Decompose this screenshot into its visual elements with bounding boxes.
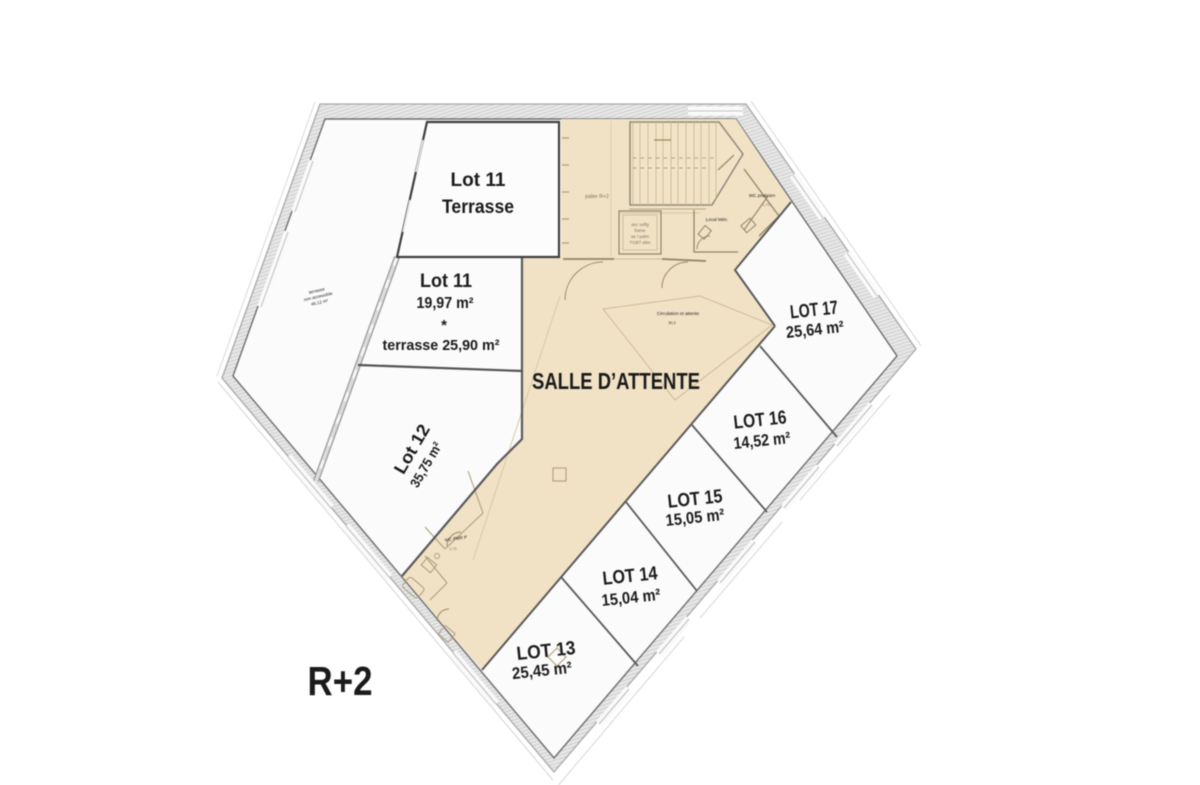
svg-text:terrasse 25,90 m²: terrasse 25,90 m² — [383, 337, 500, 354]
svg-text:*: * — [441, 317, 447, 334]
svg-text:Terrasse: Terrasse — [442, 197, 514, 218]
svg-text:palier R+2: palier R+2 — [585, 194, 609, 200]
svg-text:Lot 11: Lot 11 — [451, 170, 506, 191]
svg-text:SALLE D’ATTENTE: SALLE D’ATTENTE — [532, 368, 700, 394]
svg-text:Local Mén.: Local Mén. — [706, 217, 728, 222]
svg-text:R+2: R+2 — [308, 658, 373, 704]
svg-text:frame: frame — [634, 228, 646, 233]
svg-text:TGBT alim: TGBT alim — [630, 240, 651, 245]
svg-text:WC praticien: WC praticien — [749, 193, 776, 198]
svg-text:asc selfg: asc selfg — [631, 222, 649, 227]
svg-text:Circulation et attente: Circulation et attente — [657, 311, 700, 316]
svg-text:Lot 11: Lot 11 — [420, 271, 472, 292]
svg-text:ae l palm: ae l palm — [631, 234, 649, 239]
svg-text:30,2: 30,2 — [668, 321, 675, 325]
svg-text:2,70: 2,70 — [449, 547, 456, 551]
svg-text:1,70: 1,70 — [762, 203, 769, 207]
svg-text:19,97 m²: 19,97 m² — [417, 295, 474, 312]
